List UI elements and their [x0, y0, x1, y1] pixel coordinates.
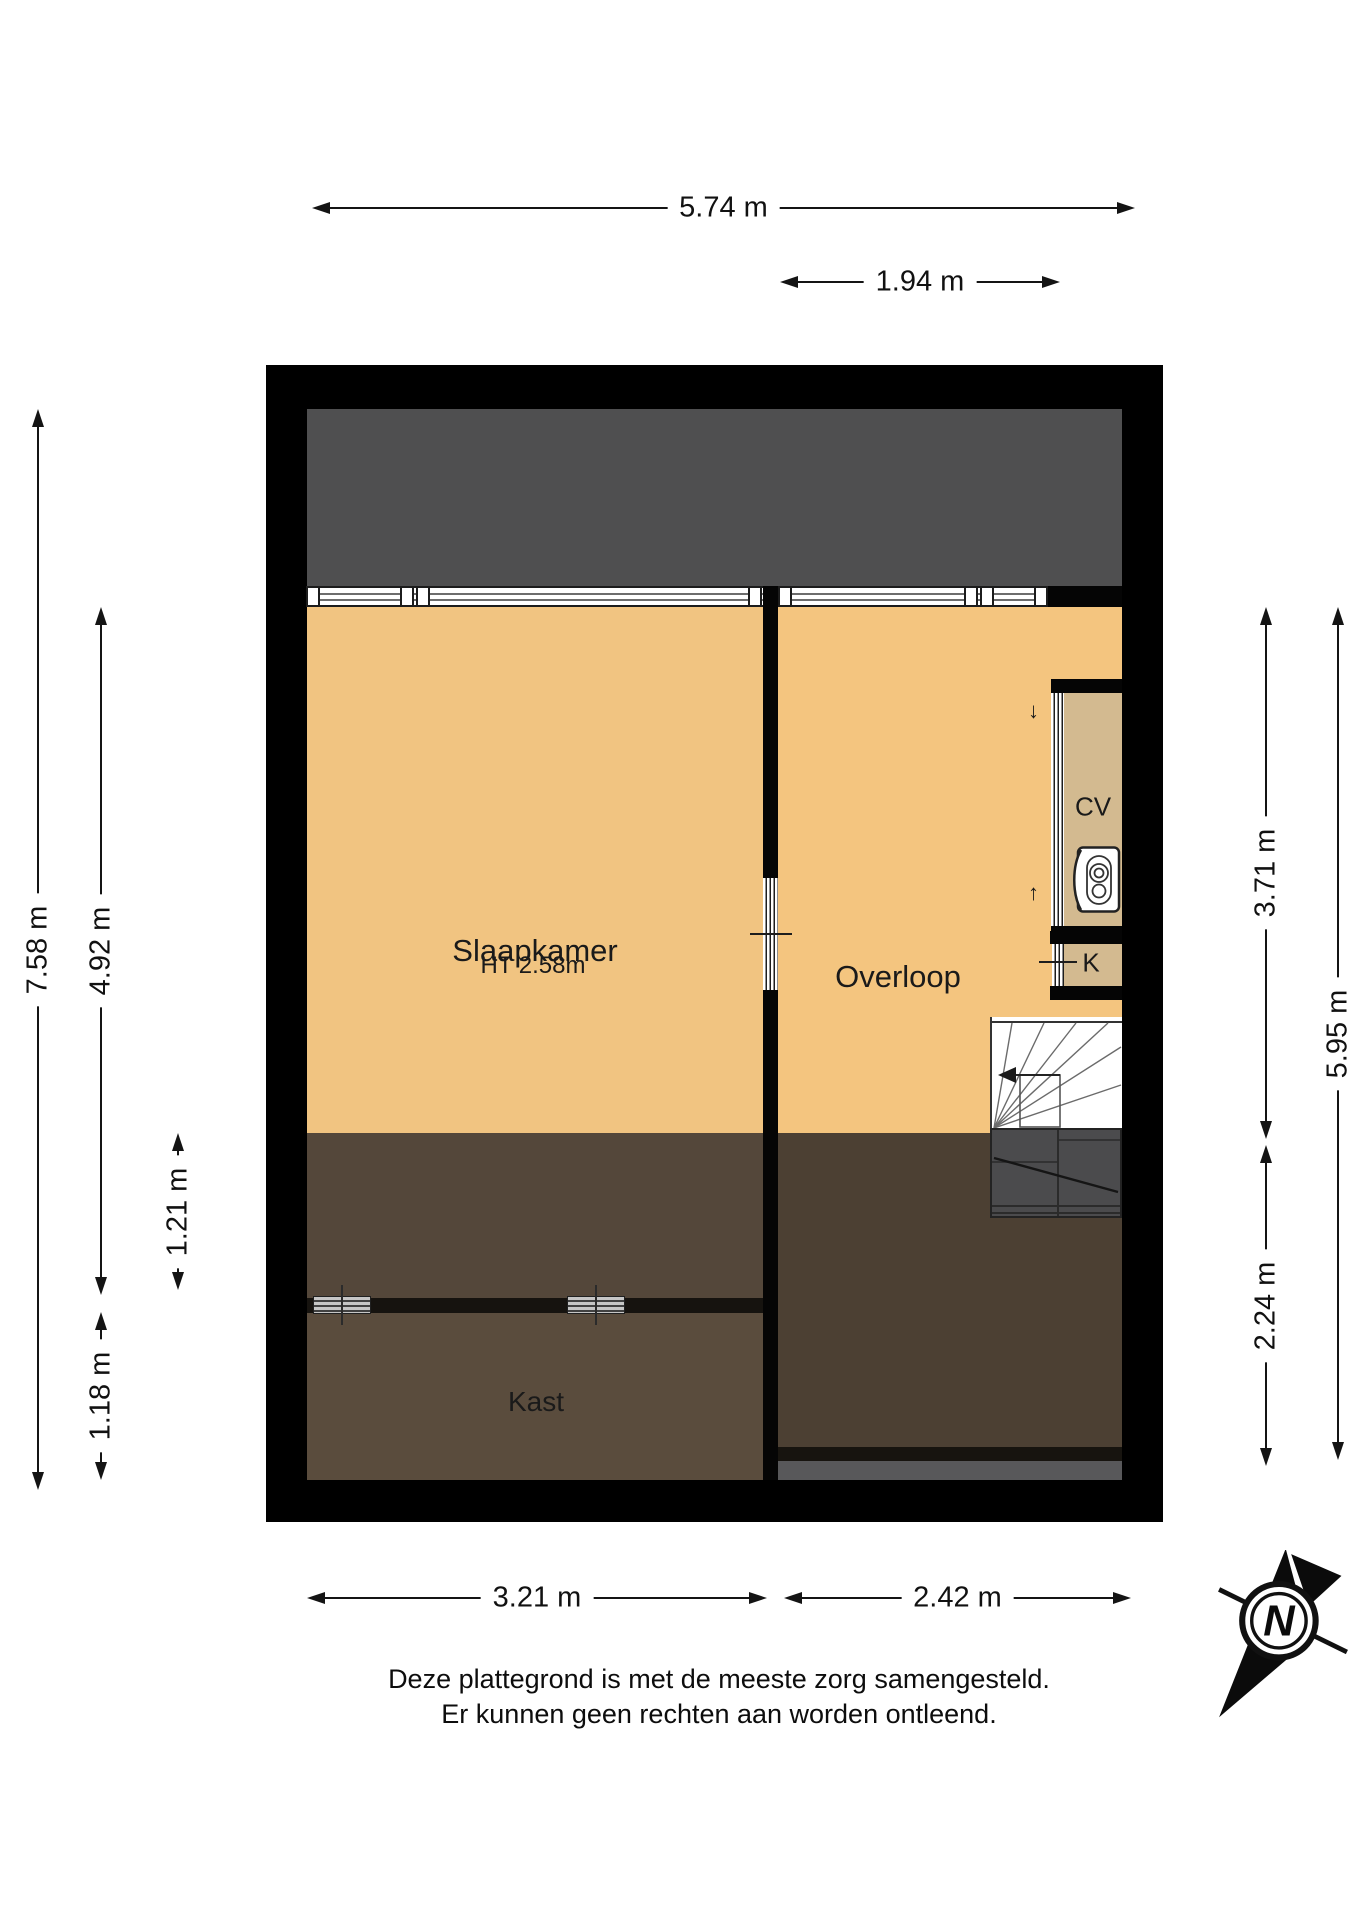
dim-left-room: 4.92 m — [100, 607, 102, 1295]
roof-void-zone-left — [307, 1133, 763, 1298]
window-mullion — [400, 586, 414, 607]
disclaimer-line-2: Er kunnen geen rechten aan worden ontlee… — [80, 1697, 1358, 1732]
room-label-cv: CV — [1075, 792, 1111, 823]
room-slaapkamer — [307, 607, 763, 1133]
bottom-right-ledge — [778, 1461, 1122, 1480]
dim-left-kast: 1.18 m — [100, 1312, 102, 1480]
dim-top-total: 5.74 m — [312, 207, 1135, 209]
dim-right-lower: 2.24 m — [1265, 1145, 1267, 1466]
dim-label: 1.21 m — [162, 1155, 195, 1268]
staircase-upper — [990, 1017, 1122, 1128]
dim-right-total: 5.95 m — [1337, 607, 1339, 1460]
dim-label: 5.95 m — [1322, 977, 1355, 1090]
door-swing-down-arrow-icon: ↓ — [1028, 700, 1039, 722]
door-leader-line — [1039, 961, 1077, 963]
dim-label: 4.92 m — [85, 895, 118, 1008]
stairs-direction-arrow-icon — [998, 1067, 1060, 1083]
k-closet-wall-bottom — [1050, 986, 1122, 1000]
window-mullion — [416, 586, 430, 607]
stairs-winder-lines — [992, 1017, 1122, 1128]
dim-bottom-overloop: 2.42 m — [784, 1597, 1131, 1599]
dim-label: 3.21 m — [481, 1582, 594, 1615]
compass-rose: N — [1215, 1550, 1351, 1720]
disclaimer-line-1: Deze plattegrond is met de meeste zorg s… — [80, 1662, 1358, 1697]
window-mullion — [778, 586, 792, 607]
window-mullion — [748, 586, 762, 607]
louvre-door-cv — [1051, 693, 1064, 926]
door-tick-mark — [595, 1285, 597, 1325]
dim-label: 3.71 m — [1250, 817, 1283, 930]
door-leader-line — [750, 933, 792, 935]
kast-wall — [307, 1298, 763, 1313]
dim-label: 5.74 m — [667, 192, 780, 225]
door-tick-mark — [341, 1285, 343, 1325]
bottom-right-wall — [778, 1447, 1122, 1461]
disclaimer: Deze plattegrond is met de meeste zorg s… — [80, 1662, 1358, 1731]
door-swing-up-arrow-icon: ↑ — [1028, 882, 1039, 904]
window-band-slaapkamer — [307, 586, 763, 607]
room-label-kast: Kast — [508, 1386, 564, 1418]
dim-left-total: 7.58 m — [37, 409, 39, 1490]
room-label-k: K — [1082, 948, 1099, 979]
room-label-overloop: Overloop — [835, 959, 961, 995]
stairs-lower-lines — [992, 1130, 1120, 1216]
dim-label: 1.94 m — [864, 266, 977, 299]
boiler-icon — [1071, 846, 1121, 914]
staircase-lower — [990, 1128, 1122, 1218]
floor-plan: ↓ ↑ Slaa — [0, 0, 1358, 1920]
cv-closet-wall-top — [1051, 679, 1122, 693]
roof-void-zone-top — [307, 409, 1122, 586]
room-height-note-slaapkamer: HT 2.58m — [481, 952, 586, 980]
interior-wall — [763, 586, 778, 1480]
dim-label: 1.18 m — [85, 1340, 118, 1453]
dim-label: 7.58 m — [22, 893, 55, 1006]
dim-right-overloop: 3.71 m — [1265, 607, 1267, 1139]
louvre-door-k — [1052, 944, 1064, 986]
dim-label: 2.42 m — [901, 1582, 1014, 1615]
window-mullion — [980, 586, 994, 607]
dim-left-lower: 1.21 m — [177, 1133, 179, 1290]
window-mullion — [964, 586, 978, 607]
wall-segment-top-right — [1048, 586, 1122, 607]
window-mullion — [306, 586, 320, 607]
window-mullion — [1034, 586, 1048, 607]
north-letter: N — [1263, 1598, 1296, 1646]
dim-bottom-slaapkamer: 3.21 m — [307, 1597, 767, 1599]
dim-label: 2.24 m — [1250, 1249, 1283, 1362]
window-band-overloop — [778, 586, 1048, 607]
k-closet-wall-top — [1050, 931, 1122, 944]
dim-top-window: 1.94 m — [780, 281, 1060, 283]
